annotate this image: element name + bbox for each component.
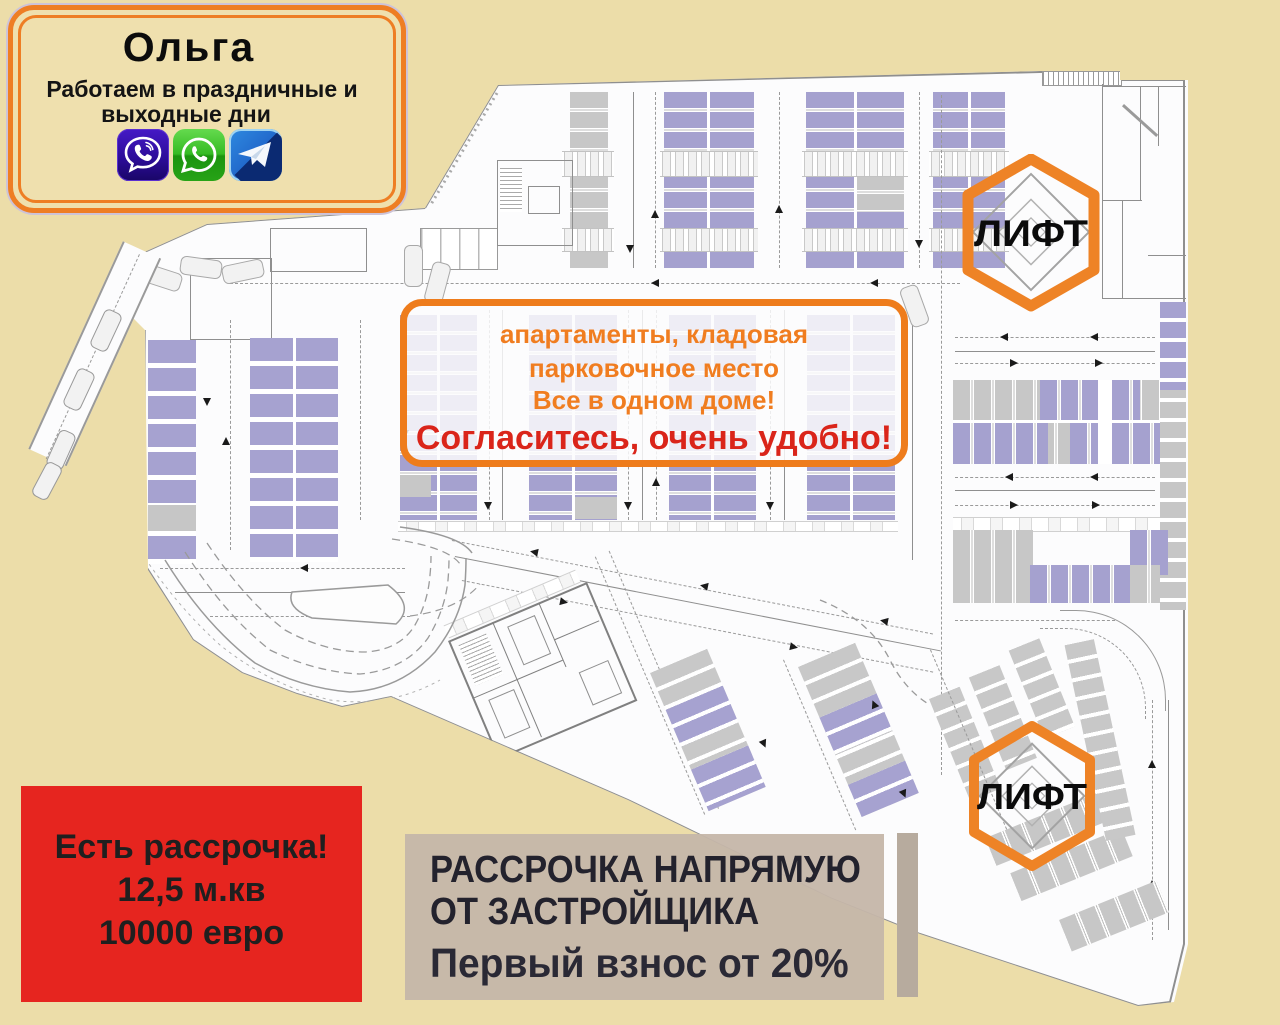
svg-text:ЛИФТ: ЛИФТ — [977, 776, 1087, 817]
svg-text:ЛИФТ: ЛИФТ — [974, 213, 1088, 254]
